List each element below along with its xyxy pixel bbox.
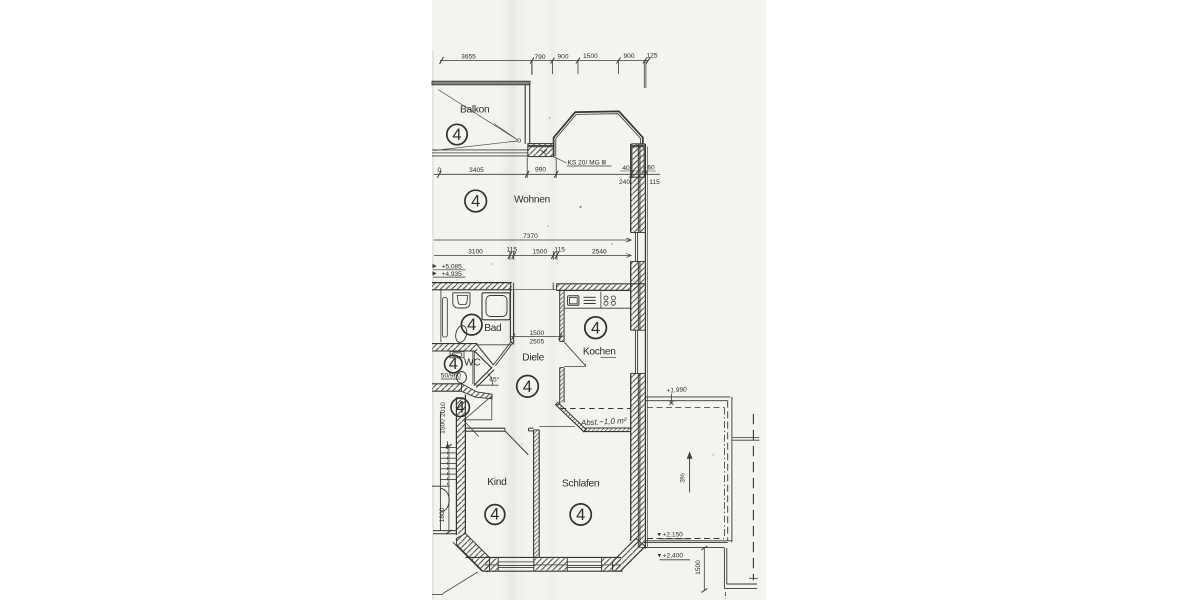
svg-text:4: 4 [456,398,465,416]
svg-text:1500: 1500 [583,53,598,60]
svg-text:4: 4 [452,126,461,144]
svg-text:1500: 1500 [529,330,544,337]
svg-text:3405: 3405 [469,167,484,174]
svg-text:240: 240 [619,179,630,186]
svg-text:115: 115 [507,246,518,253]
svg-text:790: 790 [535,54,546,61]
svg-text:+5,085: +5,085 [442,263,463,270]
svg-text:60: 60 [647,164,655,171]
svg-text:40: 40 [622,165,630,172]
svg-text:4: 4 [591,319,600,337]
svg-text:45°: 45° [489,376,499,384]
svg-text:1500: 1500 [439,419,446,434]
svg-text:Kind: Kind [487,477,507,488]
svg-text:Wohnen: Wohnen [514,195,550,206]
svg-text:50/960: 50/960 [441,373,462,380]
svg-text:0: 0 [438,167,442,174]
svg-text:1500: 1500 [695,560,702,575]
svg-text:1800: 1800 [439,507,446,522]
svg-text:115: 115 [649,179,660,186]
svg-text:Bad: Bad [484,323,502,334]
svg-text:990: 990 [535,167,546,174]
svg-text:4: 4 [576,506,585,524]
svg-text:4: 4 [449,355,458,373]
svg-text:4: 4 [523,378,532,396]
svg-text:KS 20/ MG Ⅲ: KS 20/ MG Ⅲ [568,159,607,166]
svg-text:1500: 1500 [532,248,547,255]
svg-text:4: 4 [467,316,476,334]
svg-text:4: 4 [471,193,480,211]
svg-text:115: 115 [554,246,565,253]
svg-text:Schlafen: Schlafen [562,478,599,489]
svg-text:900: 900 [624,53,635,60]
svg-text:3655: 3655 [461,54,476,61]
svg-text:2505: 2505 [529,338,544,345]
svg-text:Diele: Diele [522,352,544,363]
svg-text:+2,150: +2,150 [663,532,684,539]
svg-text:+2,400: +2,400 [663,553,684,560]
svg-text:Kochen: Kochen [583,347,616,358]
svg-text:Balkon: Balkon [460,105,489,116]
svg-text:7370: 7370 [523,233,538,240]
svg-text:WC: WC [464,357,480,368]
svg-text:125: 125 [647,53,658,60]
svg-text:900: 900 [558,54,569,61]
svg-text:+1.990: +1.990 [666,386,687,394]
svg-text:2010: 2010 [440,402,447,417]
svg-text:2540: 2540 [592,248,607,255]
svg-text:3100: 3100 [468,248,483,255]
svg-text:3%: 3% [680,473,687,483]
svg-text:4: 4 [490,506,499,524]
